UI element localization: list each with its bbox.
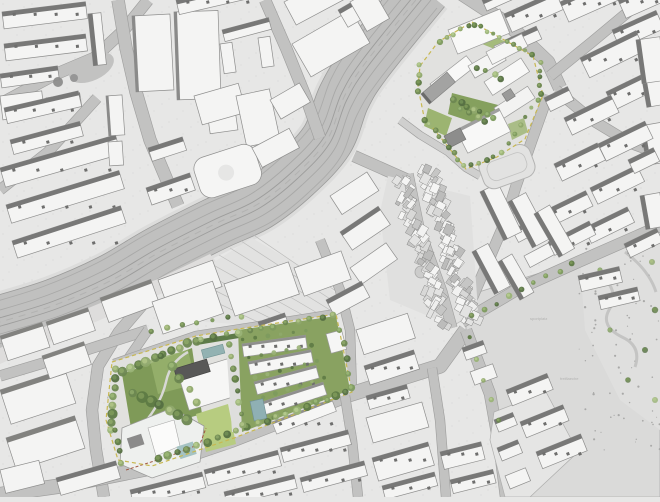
svg-text:freiflaeche: freiflaeche <box>560 376 579 381</box>
svg-text:sportplatz: sportplatz <box>530 316 547 321</box>
